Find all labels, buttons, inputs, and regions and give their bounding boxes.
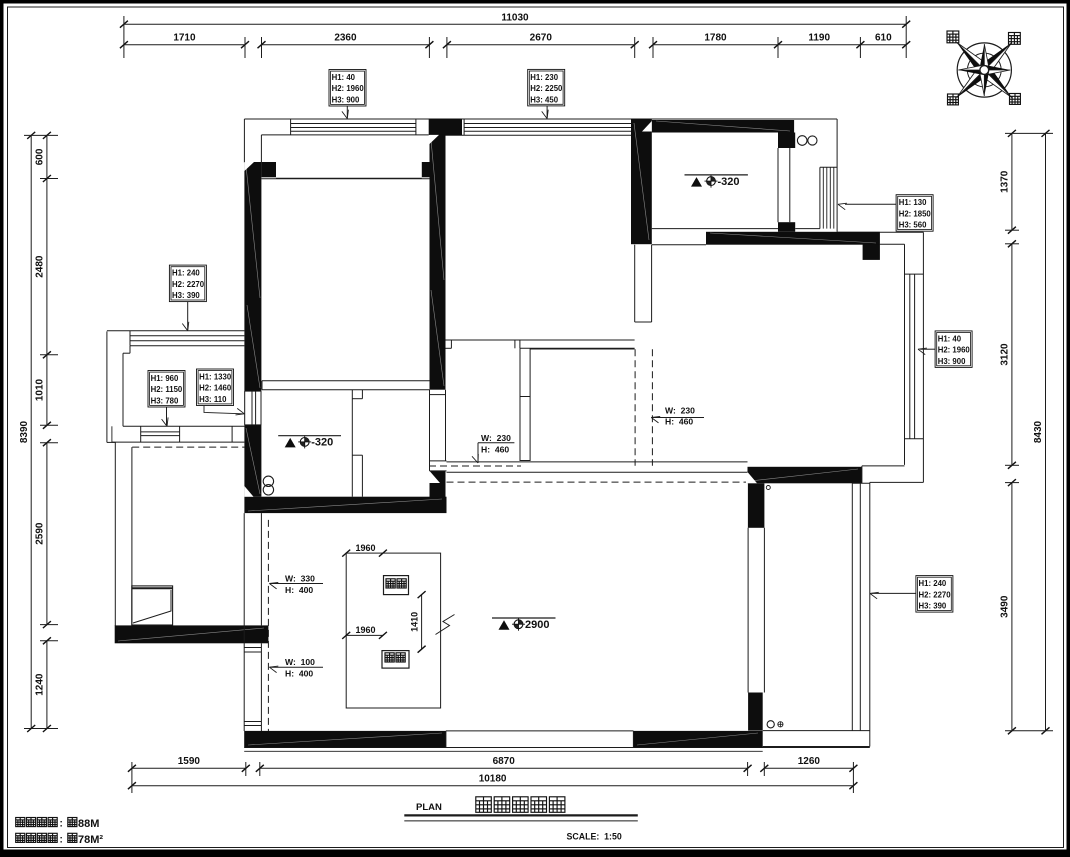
svg-text:H1: 240: H1: 240 [919,579,947,588]
svg-text:H3: 450: H3: 450 [530,95,558,104]
svg-text:H: 460: H: 460 [481,445,509,455]
svg-text::: : [60,819,63,830]
svg-text:H3: 110: H3: 110 [199,395,227,404]
svg-text:H3: 390: H3: 390 [172,291,200,300]
svg-text:2480: 2480 [35,255,46,278]
svg-text:H2: 2250: H2: 2250 [530,84,563,93]
svg-text:3490: 3490 [1000,595,1011,618]
svg-text:-320: -320 [311,437,333,449]
svg-text:10180: 10180 [479,774,507,785]
svg-text:H1: 40: H1: 40 [938,334,962,343]
svg-text:W: 330: W: 330 [285,574,315,584]
svg-text:1960: 1960 [355,543,375,553]
svg-text:H3: 900: H3: 900 [332,96,360,105]
svg-text::: : [60,834,63,845]
svg-text:H3: 780: H3: 780 [151,397,179,406]
svg-text:610: 610 [875,33,892,44]
svg-text:11030: 11030 [501,13,529,24]
svg-text:H: 400: H: 400 [285,668,313,678]
svg-text:H2: 1850: H2: 1850 [899,209,932,218]
svg-text:H1: 240: H1: 240 [172,269,200,278]
svg-text:H1: 130: H1: 130 [899,198,927,207]
svg-text:H2: 1460: H2: 1460 [199,384,232,393]
svg-text:1780: 1780 [704,33,727,44]
svg-text:W: 230: W: 230 [481,433,511,443]
svg-text:1190: 1190 [808,33,830,44]
svg-text:W: 100: W: 100 [285,657,315,667]
svg-text:1410: 1410 [410,612,420,632]
svg-text:H2: 2270: H2: 2270 [172,280,205,289]
svg-text:2900: 2900 [525,619,549,631]
svg-text:H2: 1150: H2: 1150 [151,385,183,394]
svg-text:2670: 2670 [530,33,553,44]
svg-text:H1: 40: H1: 40 [332,73,356,82]
svg-text:H1: 960: H1: 960 [151,374,179,383]
svg-text:3120: 3120 [1000,343,1011,366]
svg-text:88M: 88M [78,818,99,830]
svg-text:1240: 1240 [35,673,46,696]
svg-text:H2: 1960: H2: 1960 [938,346,971,355]
svg-text:1370: 1370 [1000,170,1011,193]
svg-text:H: 400: H: 400 [285,585,313,595]
svg-text:8390: 8390 [19,420,30,443]
svg-text:1590: 1590 [178,756,201,767]
svg-text:H2: 1960: H2: 1960 [332,84,365,93]
svg-text:H3: 390: H3: 390 [919,602,947,611]
svg-text:H1: 1330: H1: 1330 [199,372,232,381]
svg-text:8430: 8430 [1033,420,1044,443]
svg-text:1960: 1960 [355,625,375,635]
svg-text:W: 230: W: 230 [665,406,695,416]
svg-text:-320: -320 [718,176,740,188]
svg-text:H3: 900: H3: 900 [938,357,966,366]
svg-text:H2: 2270: H2: 2270 [919,590,952,599]
svg-text:78M²: 78M² [78,834,103,846]
svg-text:2360: 2360 [334,33,357,44]
svg-text:6870: 6870 [493,756,516,767]
svg-text:2590: 2590 [35,522,46,545]
svg-text:H1: 230: H1: 230 [530,73,558,82]
svg-text:1010: 1010 [35,378,46,401]
svg-text:SCALE: 1:50: SCALE: 1:50 [567,832,622,842]
svg-text:1260: 1260 [798,756,821,767]
svg-text:1710: 1710 [173,33,196,44]
svg-text:600: 600 [35,148,46,165]
svg-text:PLAN: PLAN [416,802,442,813]
svg-text:H3: 560: H3: 560 [899,221,927,230]
